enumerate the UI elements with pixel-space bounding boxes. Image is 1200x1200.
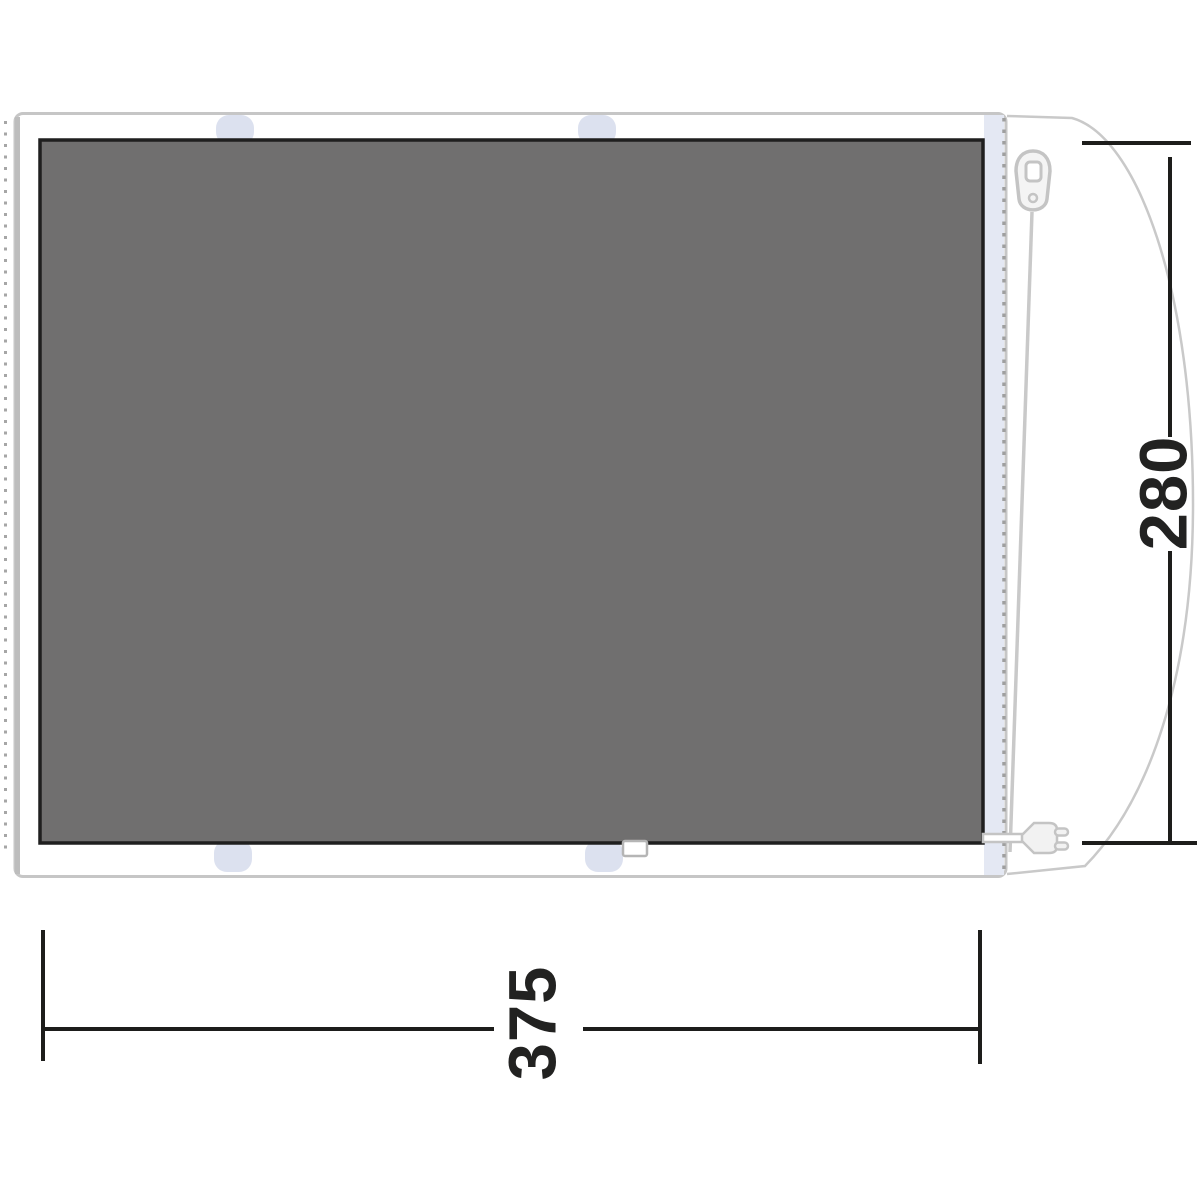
zip-line (1010, 212, 1032, 852)
groundsheet-panel (40, 140, 983, 843)
plug-prong-bottom (1055, 843, 1068, 850)
width-dimension-label: 375 (500, 966, 567, 1081)
attachment-tab-bottom-left (214, 840, 252, 872)
height-dimension-label: 280 (1131, 436, 1198, 551)
plug-cable (983, 834, 1023, 842)
bottom-notch-tab (623, 841, 647, 856)
plug-prong-top (1055, 829, 1068, 836)
zipper-pull-icon (1016, 151, 1050, 210)
zipper-pull-hole (1026, 162, 1041, 181)
zip-strip (984, 115, 1004, 875)
diagram-canvas (0, 0, 1200, 1200)
attachment-tab-bottom-right (585, 840, 623, 872)
footprint-diagram: 280 375 (0, 0, 1200, 1200)
plug-body (1022, 823, 1057, 853)
